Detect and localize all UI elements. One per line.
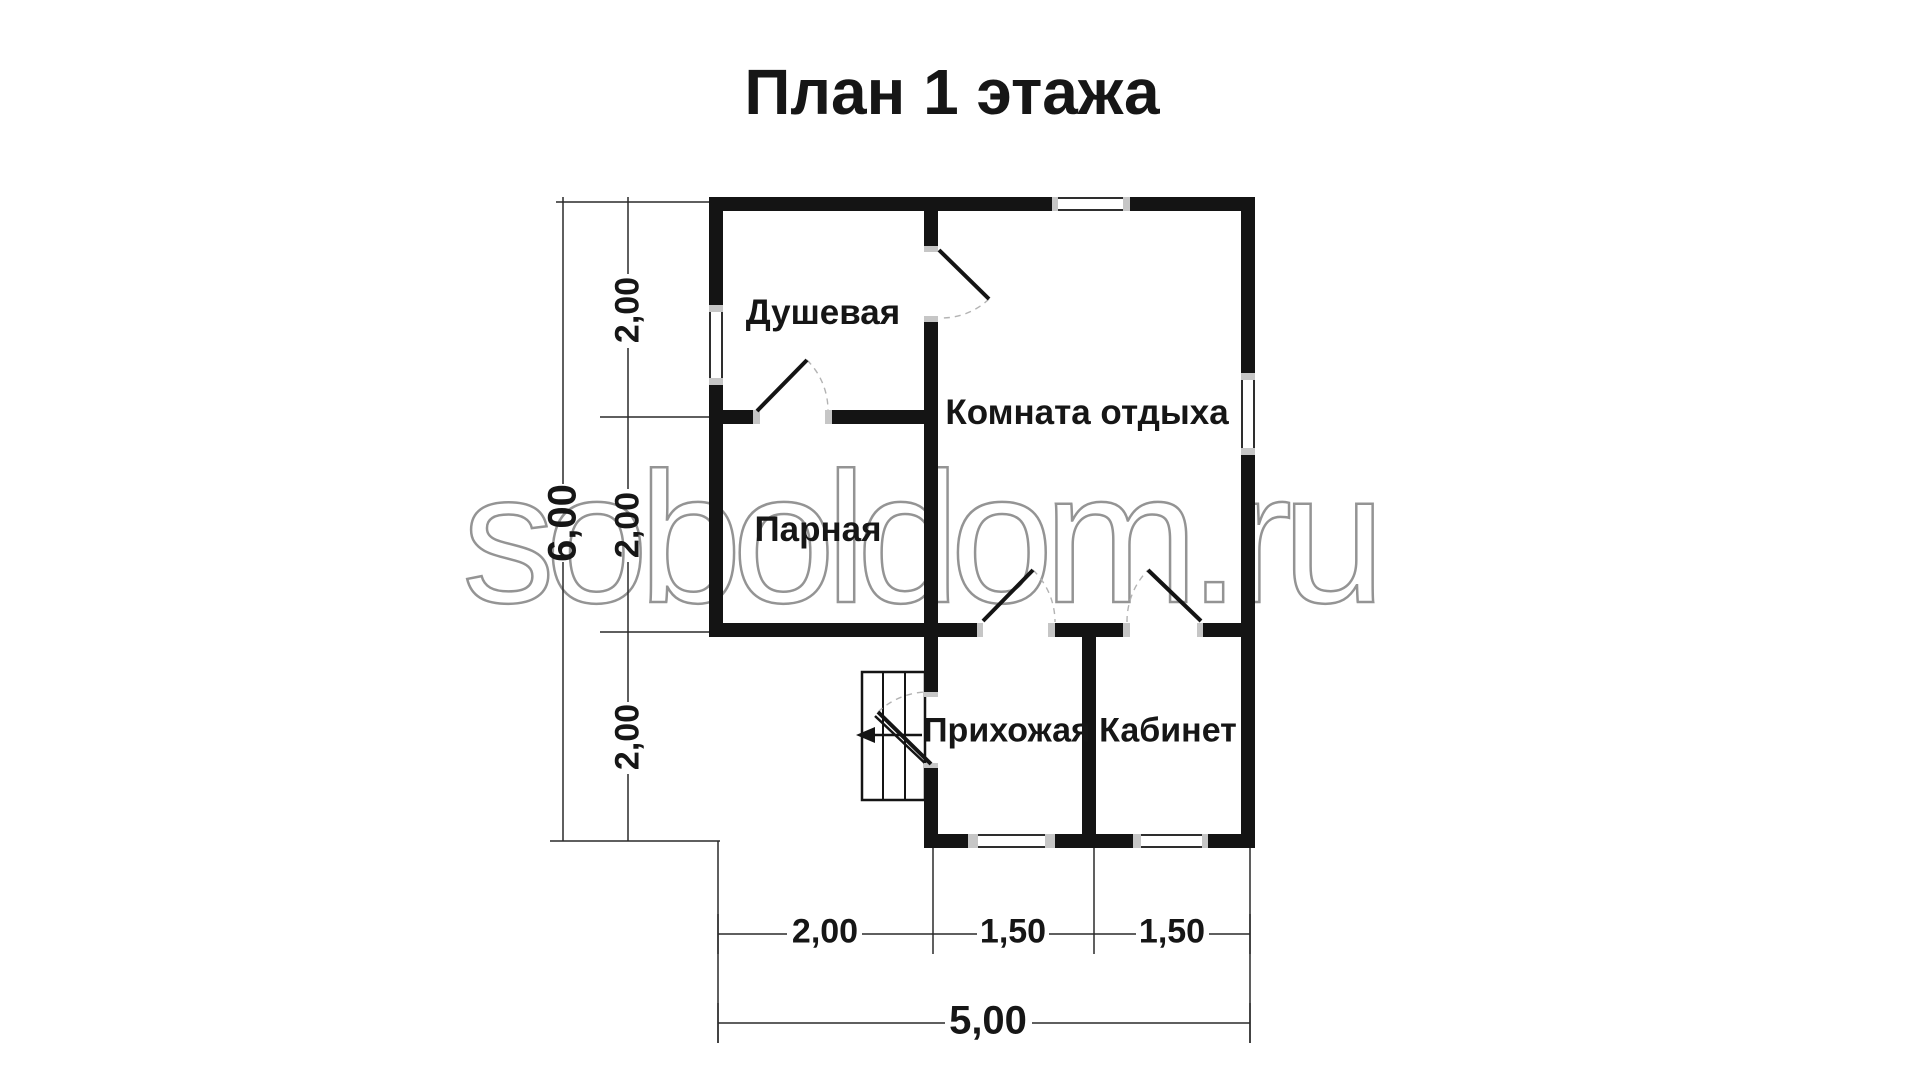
door-shower-steam	[757, 360, 807, 411]
room-label-hall: Прихожая	[923, 712, 1091, 751]
dim-label-bottom-total: 5,00	[949, 999, 1027, 1044]
room-label-steam: Парная	[754, 510, 881, 550]
dim-label-bottom-seg2: 1,50	[980, 913, 1046, 952]
room-label-office: Кабинет	[1099, 712, 1237, 751]
floor-plan-canvas: План 1 этажа soboldom.ru	[0, 0, 1920, 1080]
dim-label-left-seg1: 2,00	[609, 277, 648, 343]
dim-label-left-total: 6,00	[541, 484, 586, 562]
dim-label-bottom-seg1: 2,00	[792, 913, 858, 952]
door-lounge-office	[1148, 570, 1201, 621]
room-label-shower: Душевая	[746, 293, 900, 333]
page-title: План 1 этажа	[744, 55, 1159, 129]
room-label-lounge: Комната отдыха	[945, 393, 1228, 433]
plan-overlay	[0, 0, 1920, 1080]
dim-label-bottom-seg3: 1,50	[1139, 913, 1205, 952]
dim-label-left-seg2: 2,00	[609, 492, 648, 558]
door-lounge-hall	[983, 570, 1033, 621]
door-shower-lounge	[939, 250, 989, 299]
dim-label-left-seg3: 2,00	[609, 704, 648, 770]
